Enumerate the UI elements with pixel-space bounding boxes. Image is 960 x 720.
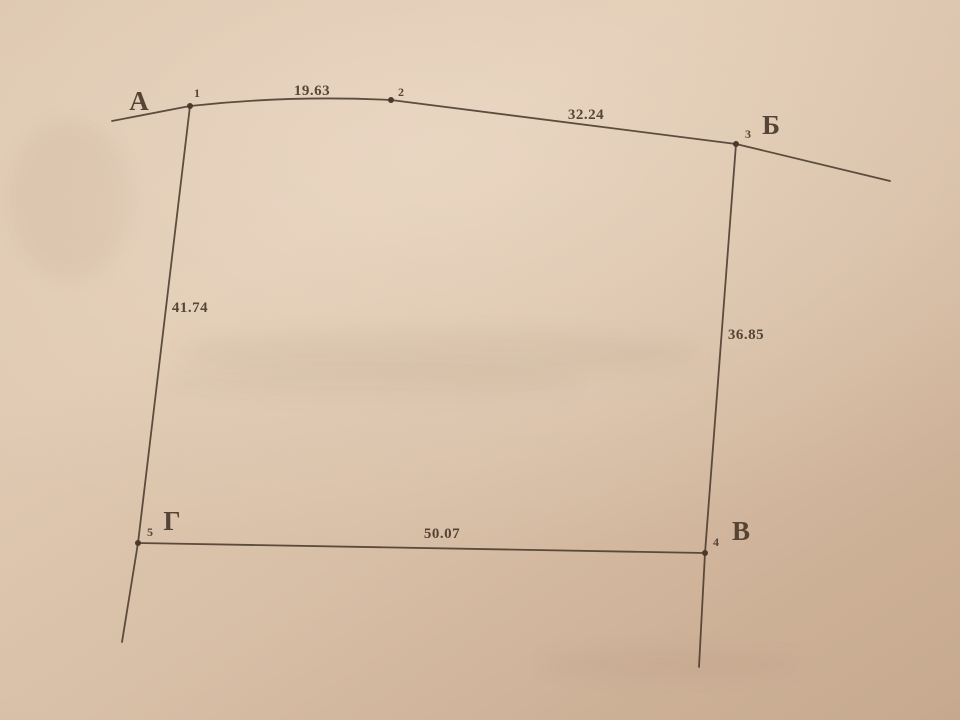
bottom-boundary-line — [138, 543, 705, 553]
point-2-dot — [388, 97, 394, 103]
survey-sketch-svg: А Б В Г 1 2 3 4 5 19.63 32.24 41.74 36.8… — [0, 0, 960, 720]
point-1-dot — [187, 103, 193, 109]
corner-label-v: В — [732, 516, 750, 546]
corner-label-a: А — [129, 86, 149, 116]
corner-label-g: Г — [163, 506, 180, 536]
point-4-dot — [702, 550, 708, 556]
point-number-2: 2 — [398, 85, 404, 99]
distance-label-2-3: 32.24 — [568, 107, 604, 123]
point-number-5: 5 — [147, 525, 153, 539]
distance-label-1-2: 19.63 — [294, 83, 330, 99]
point-number-4: 4 — [713, 535, 719, 549]
point-number-1: 1 — [194, 86, 200, 100]
distance-label-1-5: 41.74 — [172, 300, 208, 316]
corner-label-b: Б — [762, 110, 780, 140]
right-boundary-line — [699, 144, 736, 667]
point-3-dot — [733, 141, 739, 147]
distance-label-3-4: 36.85 — [728, 327, 764, 343]
distance-label-5-4: 50.07 — [424, 526, 460, 542]
photographed-survey-page: А Б В Г 1 2 3 4 5 19.63 32.24 41.74 36.8… — [0, 0, 960, 720]
point-5-dot — [135, 540, 141, 546]
left-boundary-line — [122, 106, 190, 642]
point-number-3: 3 — [745, 127, 751, 141]
